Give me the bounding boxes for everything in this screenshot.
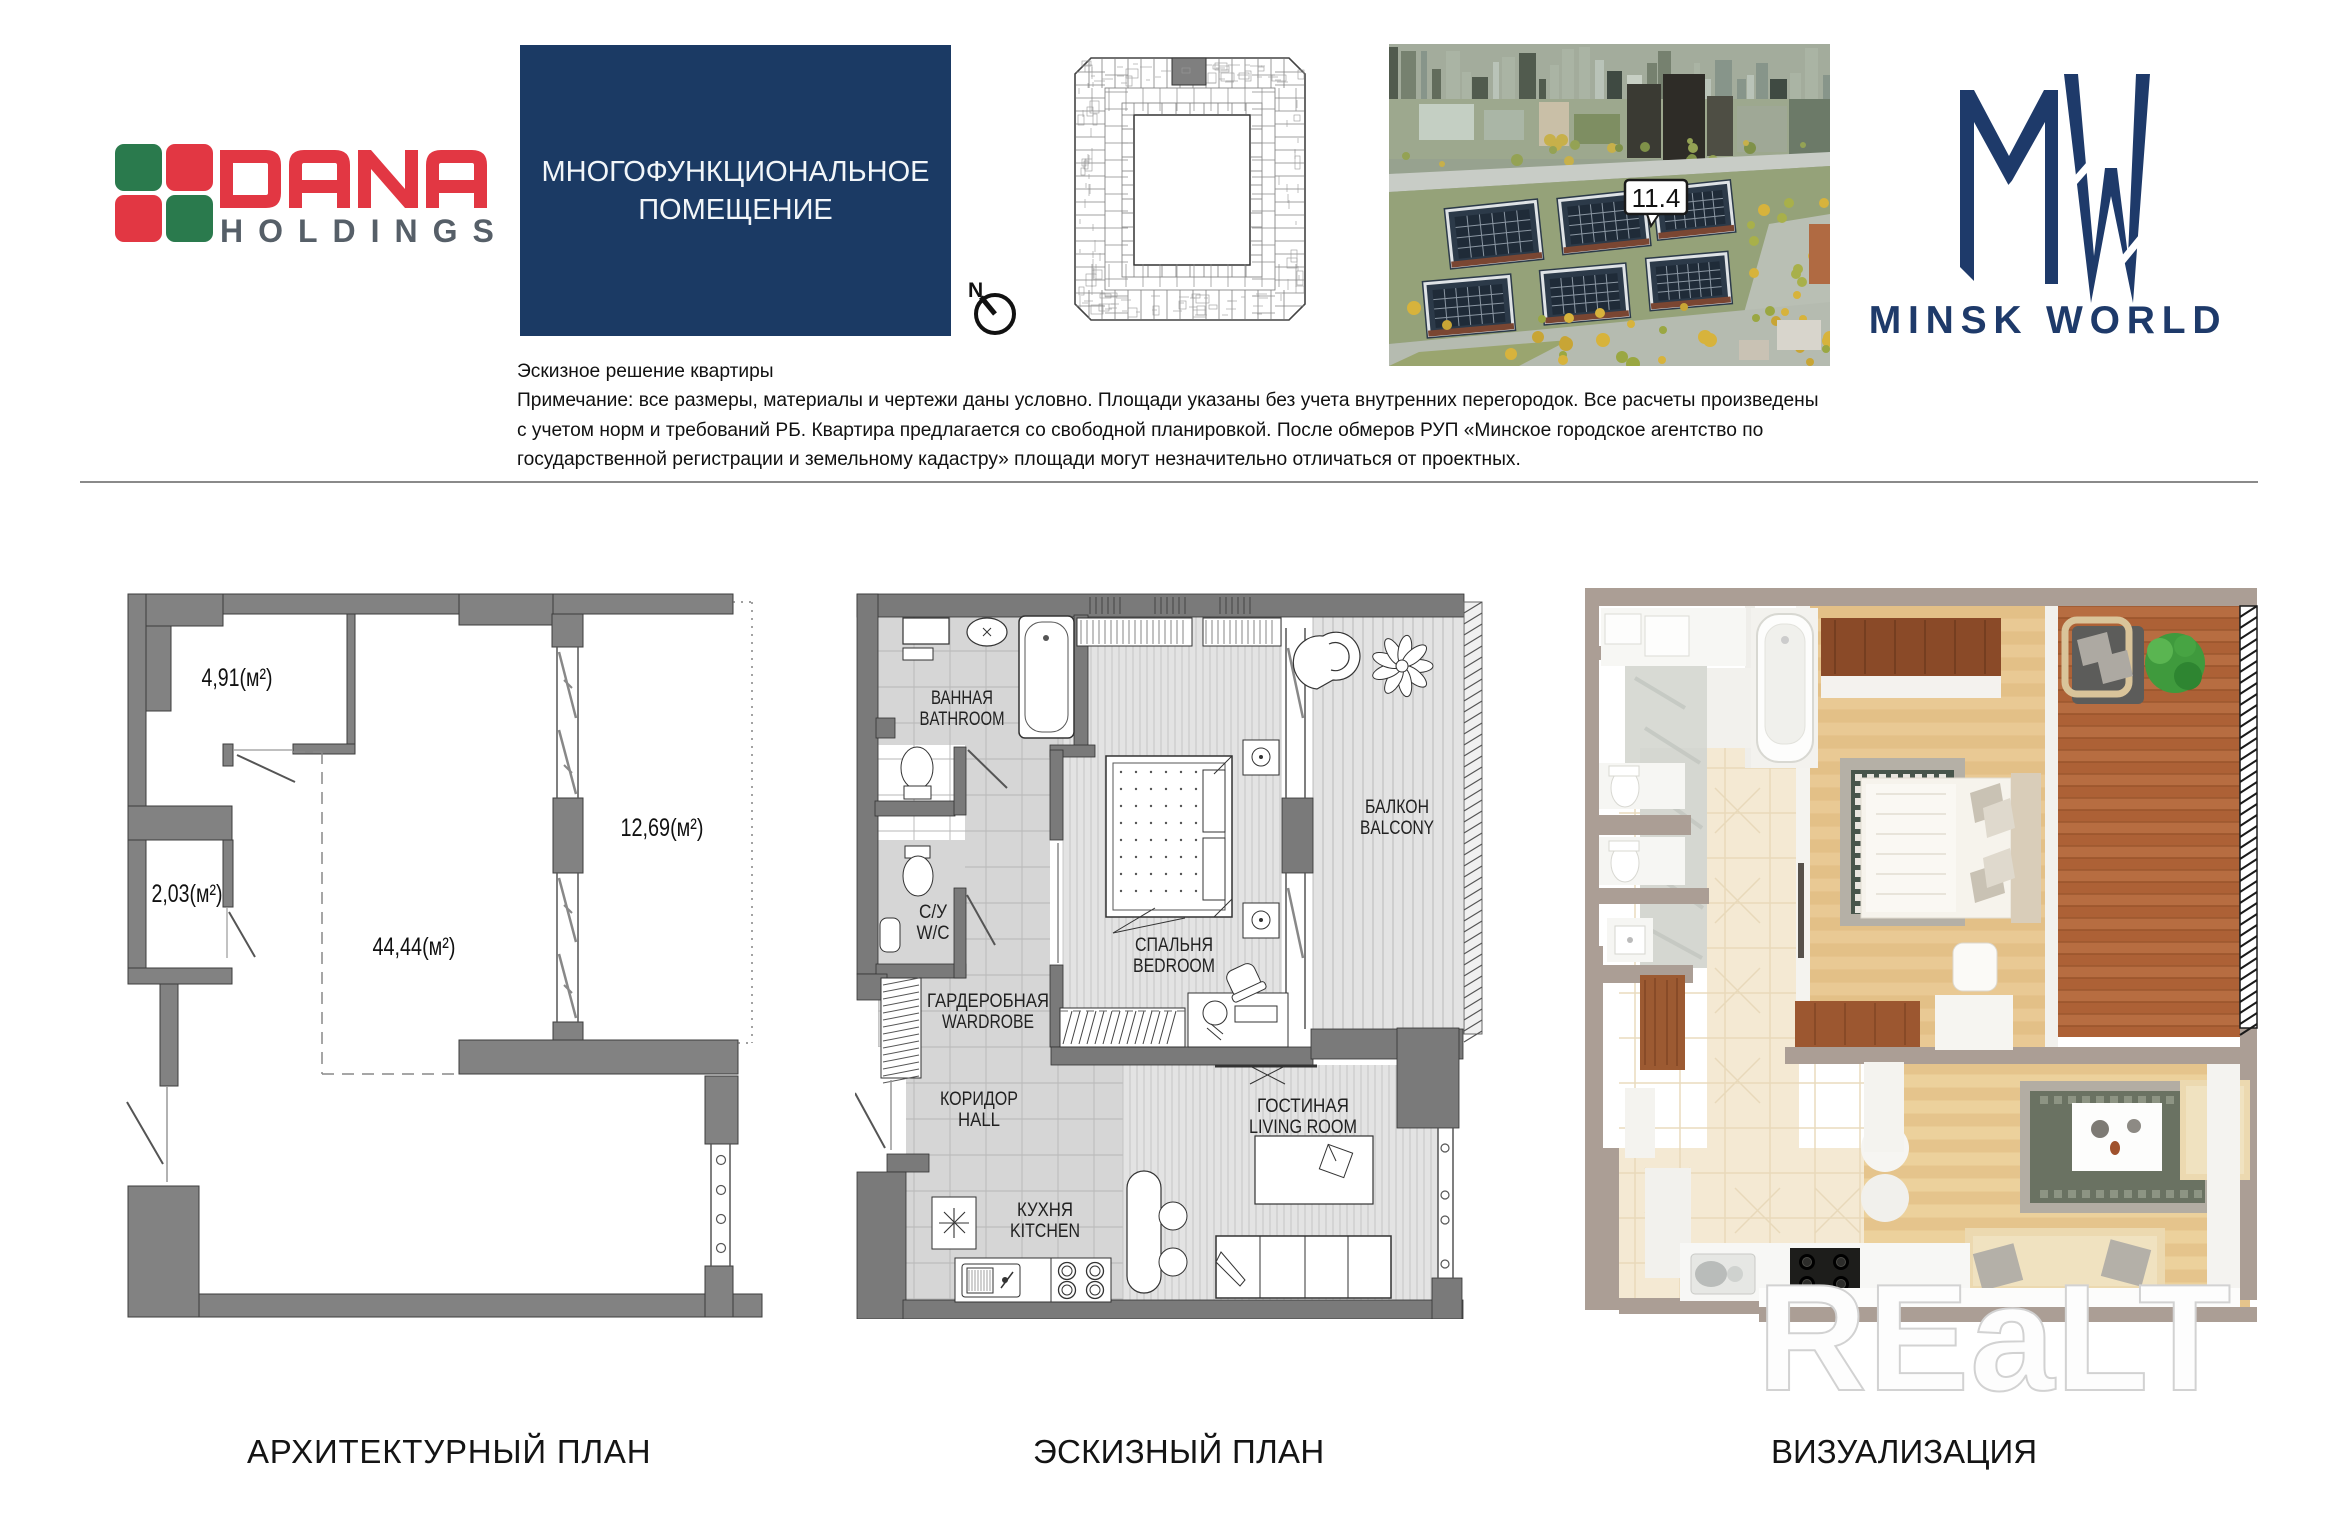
svg-text:КОРИДОР: КОРИДОР [940,1089,1018,1110]
svg-text:2,03(м²): 2,03(м²) [152,880,223,908]
svg-text:КУХНЯ: КУХНЯ [1017,1200,1073,1221]
svg-text:BEDROOM: BEDROOM [1133,956,1215,977]
svg-text:W/C: W/C [917,923,950,944]
svg-text:MINSK WORLD: MINSK WORLD [1869,299,2228,342]
svg-text:HALL: HALL [958,1110,1000,1131]
svg-text:12,69(м²): 12,69(м²) [621,814,704,842]
svg-text:4,91(м²): 4,91(м²) [202,664,273,692]
svg-text:REaLT: REaLT [1757,1253,2232,1398]
svg-text:БАЛКОН: БАЛКОН [1365,797,1429,818]
svg-text:44,44(м²): 44,44(м²) [373,933,456,961]
svg-text:С/У: С/У [919,902,948,923]
svg-text:LIVING ROOM: LIVING ROOM [1249,1117,1357,1138]
svg-text:BATHROOM: BATHROOM [920,709,1005,730]
svg-text:11.4: 11.4 [1632,183,1681,213]
svg-text:СПАЛЬНЯ: СПАЛЬНЯ [1135,935,1213,956]
svg-text:KITCHEN: KITCHEN [1010,1221,1080,1242]
svg-text:ГАРДЕРОБНАЯ: ГАРДЕРОБНАЯ [927,991,1049,1012]
svg-text:ВАННАЯ: ВАННАЯ [931,688,993,709]
svg-text:HOLDINGS: HOLDINGS [220,213,495,249]
svg-text:WARDROBE: WARDROBE [942,1012,1034,1033]
svg-text:ГОСТИНАЯ: ГОСТИНАЯ [1257,1096,1349,1117]
svg-text:BALCONY: BALCONY [1360,818,1434,839]
